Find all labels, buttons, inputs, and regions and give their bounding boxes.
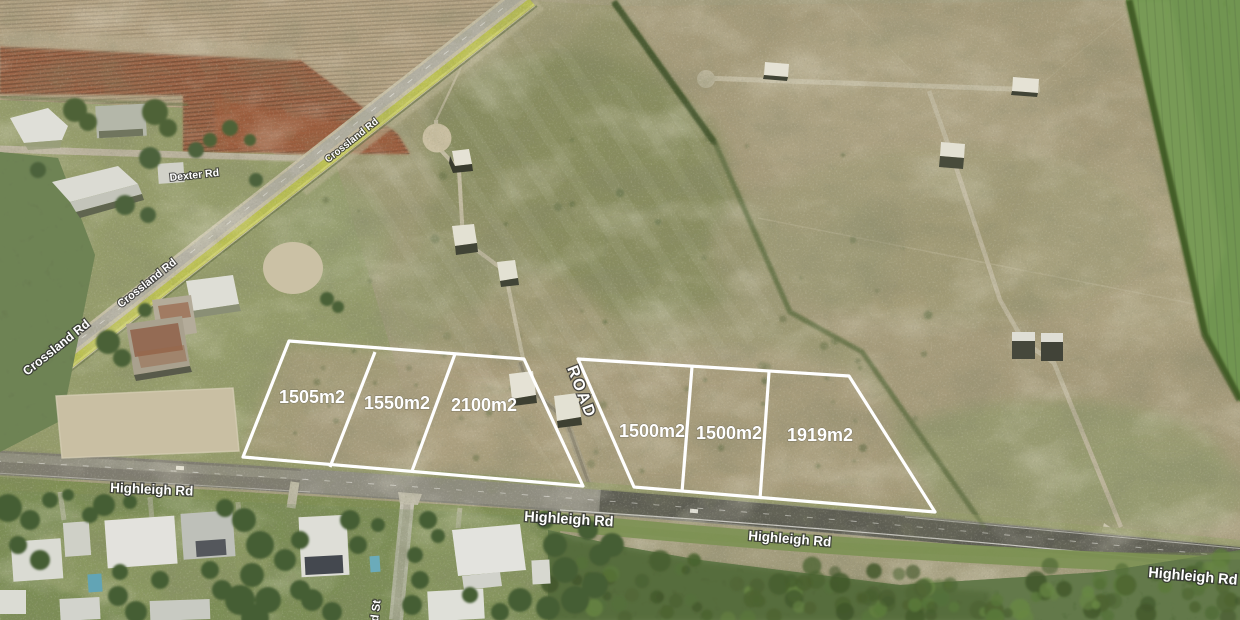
svg-text:d St: d St [369, 599, 384, 620]
svg-text:1505m2: 1505m2 [279, 387, 345, 407]
svg-text:1500m2: 1500m2 [619, 421, 685, 441]
svg-text:1550m2: 1550m2 [364, 393, 430, 413]
svg-text:1500m2: 1500m2 [696, 423, 762, 443]
svg-text:1919m2: 1919m2 [787, 425, 853, 445]
svg-text:2100m2: 2100m2 [451, 395, 517, 415]
